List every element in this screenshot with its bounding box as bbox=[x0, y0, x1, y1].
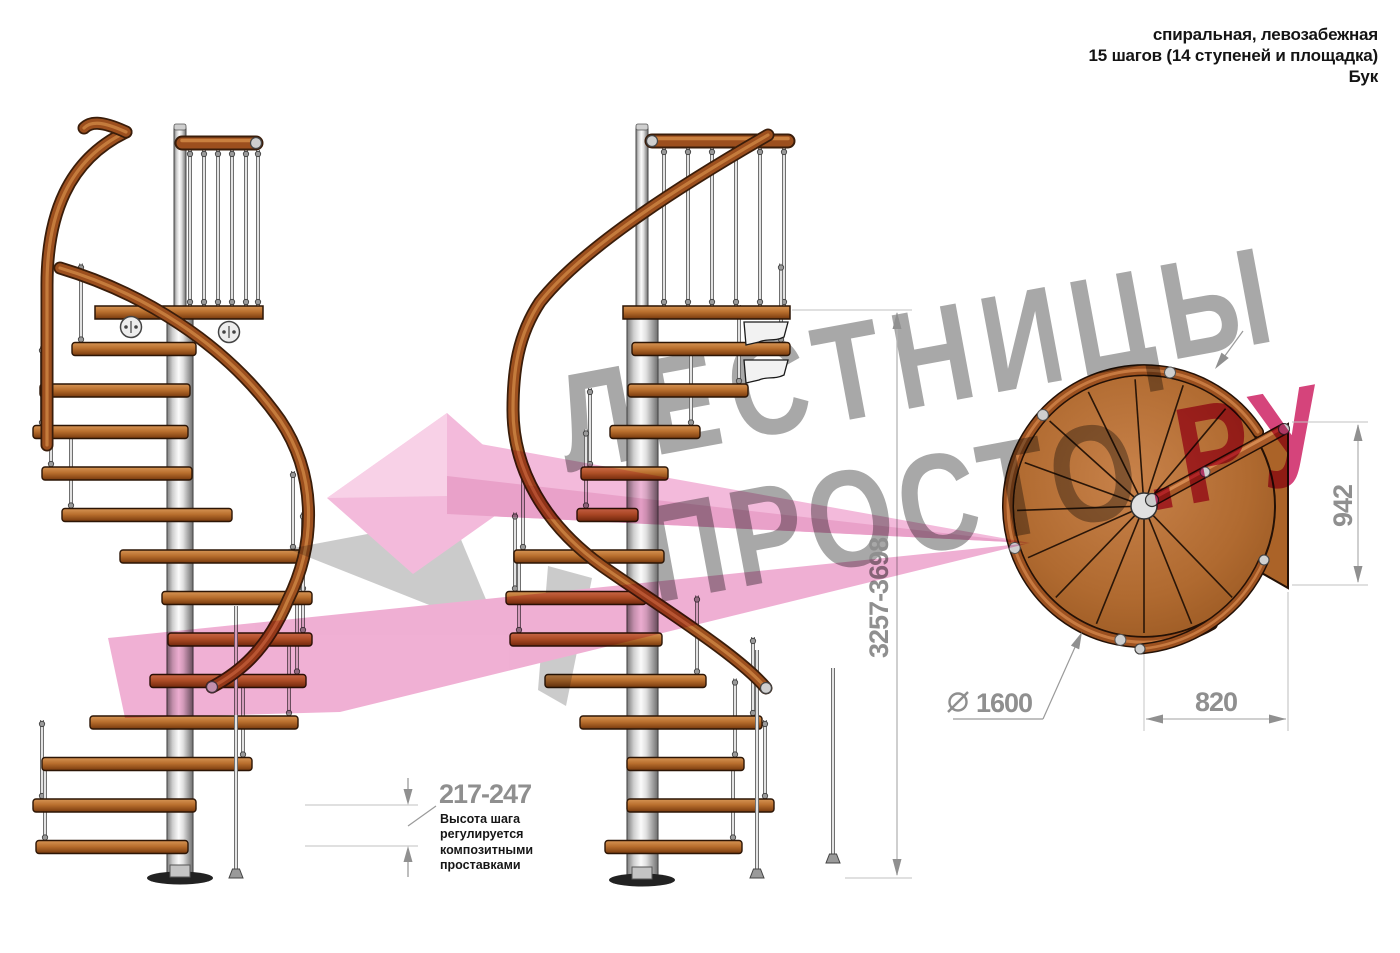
logo-arrow-facet bbox=[327, 413, 447, 498]
title-block: спиральная, левозабежная 15 шагов (14 ст… bbox=[1089, 24, 1378, 87]
watermark-logo bbox=[0, 0, 1400, 953]
title-line1: спиральная, левозабежная bbox=[1089, 24, 1378, 45]
logo-arrow-band bbox=[108, 543, 1030, 718]
drawing-canvas: ЛЕСТНИЦЫ ПРОСТО.РУ 3257-3698 bbox=[0, 0, 1400, 953]
title-line3: Бук bbox=[1089, 66, 1378, 87]
title-line2: 15 шагов (14 ступеней и площадка) bbox=[1089, 45, 1378, 66]
step-height-note: Высота шага регулируется композитными пр… bbox=[440, 812, 570, 873]
